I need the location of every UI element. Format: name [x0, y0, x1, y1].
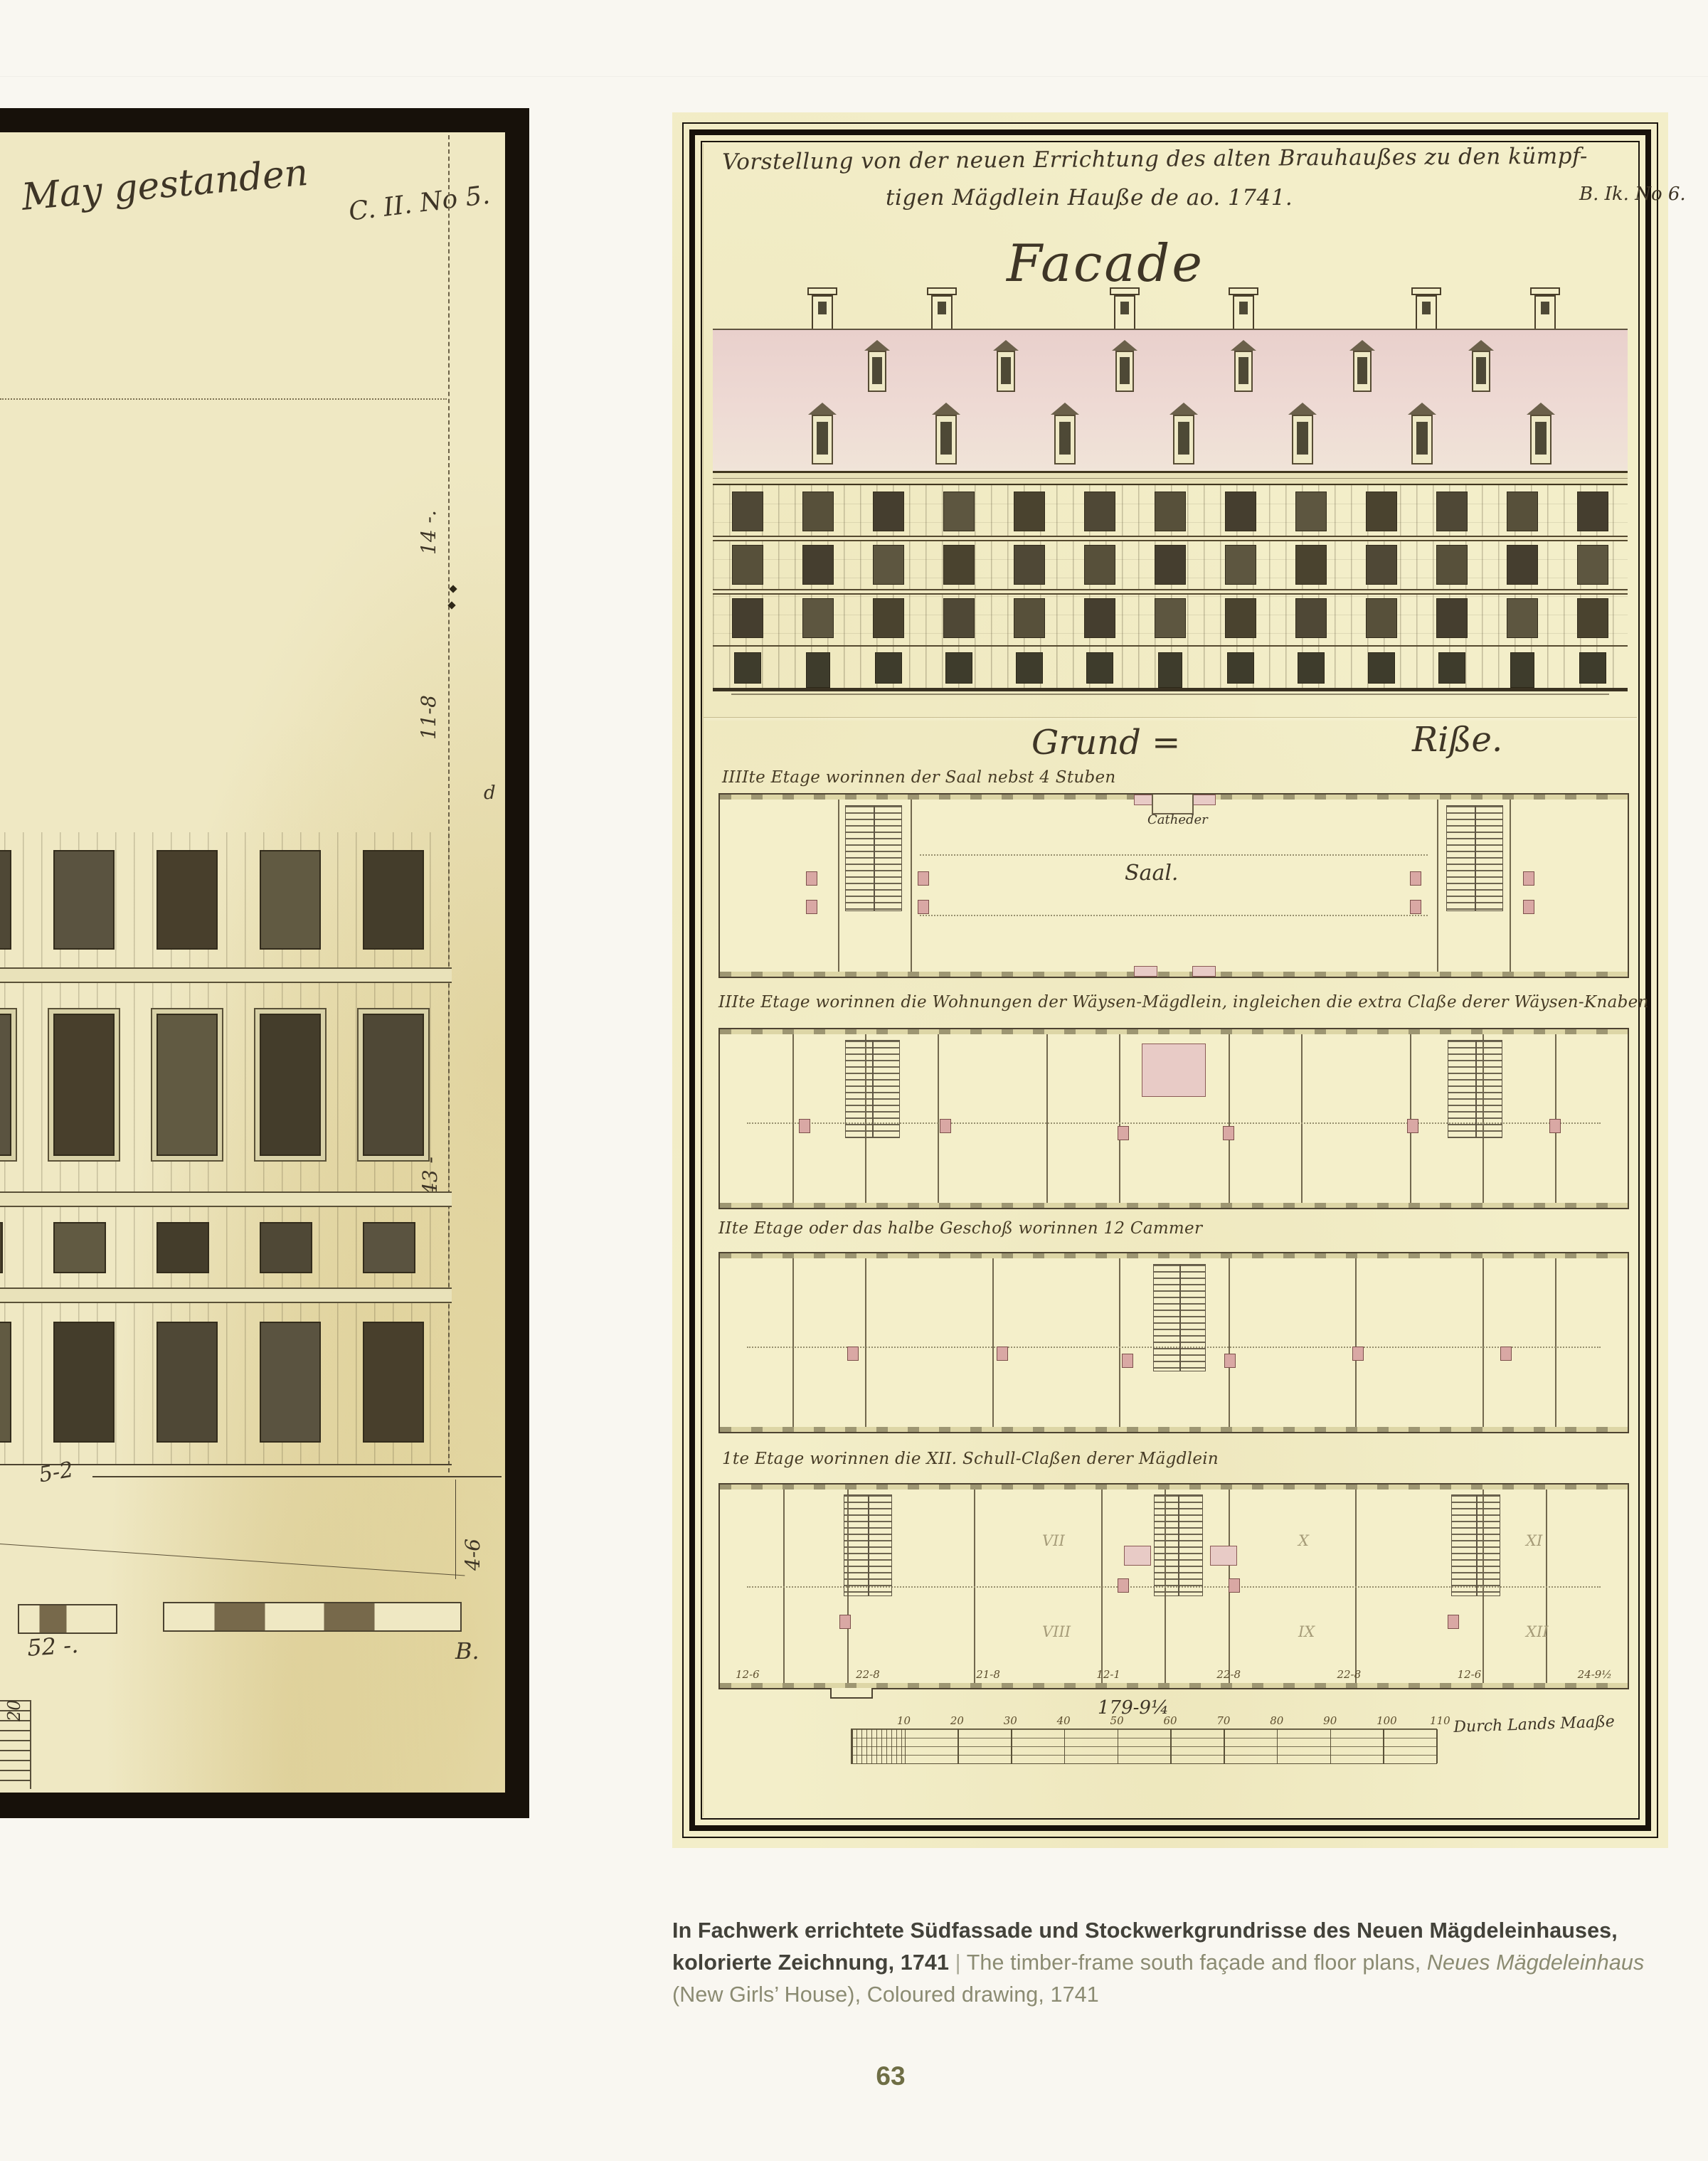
facade-window — [802, 598, 834, 638]
scan-artifact-line — [0, 76, 1708, 77]
scale-tick — [1224, 1729, 1225, 1763]
scale-tick — [1277, 1729, 1278, 1763]
page-number: 63 — [856, 2061, 925, 2091]
left-drawing: May gestanden C. II. No 5. 14 -. 11-8 43… — [0, 108, 529, 1818]
dormer-window — [810, 403, 835, 468]
stair-stringer — [1178, 1495, 1179, 1595]
room-numeral: XI — [1526, 1532, 1542, 1549]
room-numeral: VIII — [1042, 1623, 1071, 1640]
dormer-window — [1232, 340, 1255, 395]
stair-stringer — [868, 1495, 869, 1595]
chimney-cap — [1530, 287, 1560, 295]
dormer-pane — [1476, 357, 1486, 384]
stair-stringer — [872, 1041, 874, 1137]
plan-partition-wall — [1119, 1034, 1120, 1203]
stove — [1118, 1578, 1129, 1593]
facade-window — [1084, 492, 1115, 531]
plan-dimension: 12-6 — [1458, 1668, 1482, 1681]
timber-band — [0, 967, 452, 983]
facade-body — [713, 485, 1628, 645]
stove — [997, 1347, 1008, 1361]
facade-window — [1295, 492, 1327, 531]
facade-window — [1577, 598, 1608, 638]
right-drawing: Vorstellung von der neuen Errichtung des… — [672, 112, 1668, 1848]
chimney-mass — [1192, 966, 1216, 977]
plan-beam-line — [920, 854, 1428, 856]
facade-window — [260, 1222, 312, 1273]
chimney-cap — [927, 287, 957, 295]
ground-window — [734, 652, 761, 684]
plan-partition-wall — [838, 800, 839, 972]
stove — [1223, 1126, 1234, 1140]
figure-caption: In Fachwerk errichtete Südfassade und St… — [672, 1915, 1670, 2011]
dormer-pediment — [1169, 403, 1198, 415]
facade-window — [1366, 598, 1397, 638]
floor-plan-2 — [718, 1252, 1629, 1433]
facade-window — [0, 1322, 11, 1443]
dormer-window — [1528, 403, 1554, 468]
plan-dimension: 22-8 — [856, 1668, 880, 1681]
scale-tick-label: 10 — [897, 1714, 911, 1727]
facade-window — [260, 1322, 321, 1443]
facade-window — [363, 850, 424, 950]
plan-partition-wall — [1229, 1258, 1230, 1427]
facade-window — [1014, 598, 1045, 638]
facade-window — [260, 850, 321, 950]
facade-window — [53, 850, 115, 950]
plan-partition-wall — [1229, 1034, 1230, 1203]
stair-stringer — [1475, 1041, 1477, 1137]
scale-tick-label: 90 — [1323, 1714, 1337, 1727]
facade-window — [157, 1222, 209, 1273]
plan-dimension: 22-8 — [1216, 1668, 1241, 1681]
floor-band — [713, 589, 1628, 595]
stove — [918, 871, 929, 886]
facade-window — [157, 850, 218, 950]
entrance-stub — [830, 1688, 873, 1699]
plan-wall-bottom — [720, 1427, 1628, 1432]
stove — [1229, 1578, 1240, 1593]
timber-band — [0, 1287, 452, 1303]
staircase — [1451, 1494, 1500, 1596]
facade-window — [732, 598, 763, 638]
ground-window — [1227, 652, 1254, 684]
scale-tick-label: 70 — [1216, 1714, 1230, 1727]
chimney-vent — [1239, 302, 1248, 314]
dormer-window — [1171, 403, 1197, 468]
scale-tick-label: 40 — [1057, 1714, 1071, 1727]
dormer-pane — [1357, 357, 1367, 384]
chimney-vent — [1120, 302, 1129, 314]
plan-partition-wall — [792, 1034, 794, 1203]
room-label-catheder: Catheder — [1147, 812, 1208, 827]
dormer-pediment — [864, 340, 890, 351]
facade-window — [1014, 545, 1045, 585]
facade-window — [1436, 598, 1468, 638]
chimney-mass — [1124, 1546, 1151, 1566]
ground-window — [875, 652, 902, 684]
stair-stringer — [1179, 1265, 1181, 1371]
dormer-pediment — [1527, 403, 1555, 415]
plan-partition-wall — [1555, 1258, 1556, 1427]
dormer-pediment — [1288, 403, 1317, 415]
dormer-window — [1409, 403, 1435, 468]
roof-band — [713, 329, 1628, 472]
plan-partition-wall — [1046, 1034, 1048, 1203]
caption-english: The timber-frame south façade and floor … — [967, 1950, 1427, 1975]
facade-window — [53, 1222, 106, 1273]
ground-window — [945, 652, 972, 684]
facade-window — [802, 492, 834, 531]
facade-window — [1014, 492, 1045, 531]
plan-wall-top — [720, 1029, 1628, 1034]
chimney-mass — [1134, 966, 1157, 977]
stove — [1407, 1119, 1418, 1133]
plans-heading-right: Riße. — [1412, 720, 1502, 760]
staircase — [1154, 1494, 1203, 1596]
room-numeral: X — [1298, 1532, 1309, 1549]
drawing-title-line2: tigen Mägdlein Hauße de ao. 1741. — [886, 185, 1293, 211]
dormer-pediment — [1051, 403, 1079, 415]
scale-hatched-unit — [852, 1729, 905, 1763]
cornice — [713, 471, 1628, 485]
dormer-pediment — [1468, 340, 1494, 351]
sight-line — [0, 1544, 465, 1576]
dormer-pane — [872, 357, 882, 384]
facade-window — [157, 1322, 218, 1443]
facade-door — [806, 652, 830, 688]
stove — [940, 1119, 951, 1133]
dormer-window — [1470, 340, 1492, 395]
caption-english-title: Neues Mägdeleinhaus — [1427, 1950, 1644, 1975]
scale-tick — [958, 1729, 959, 1763]
ground-window — [1086, 652, 1113, 684]
scale-tick — [1011, 1729, 1012, 1763]
chimney-vent — [818, 302, 827, 314]
dormer-pane — [1178, 422, 1189, 455]
facade-window — [1084, 598, 1115, 638]
plan-dimension: 12-1 — [1096, 1668, 1120, 1681]
scale-bar-body — [851, 1729, 1437, 1764]
wall-section-bar — [163, 1602, 462, 1632]
stair-stringer — [1476, 1495, 1478, 1595]
dormer-pediment — [1112, 340, 1137, 351]
stove — [1122, 1354, 1133, 1368]
chimney-vent — [1541, 302, 1549, 314]
dimension-label: 14 -. — [417, 510, 440, 555]
scale-tick-label: 100 — [1377, 1714, 1397, 1727]
facade-window — [1507, 598, 1538, 638]
ground-window — [1368, 652, 1395, 684]
scale-tick — [905, 1729, 906, 1763]
plan-wall-top — [720, 1253, 1628, 1258]
facade-window — [363, 1222, 415, 1273]
chimney-mass — [1192, 795, 1216, 805]
stove — [918, 900, 929, 914]
facade-door — [1510, 652, 1534, 688]
dormer-pane — [1238, 357, 1248, 384]
scale-tick-label: 80 — [1270, 1714, 1283, 1727]
stove — [1523, 900, 1534, 914]
stove — [1410, 900, 1421, 914]
dimension-label: 4-6 — [461, 1539, 484, 1571]
dormer-window — [933, 403, 959, 468]
dormer-pane — [817, 422, 828, 455]
dormer-pediment — [1349, 340, 1375, 351]
facade-window — [1436, 545, 1468, 585]
plan-beam-line — [920, 915, 1428, 916]
facade-window — [802, 545, 834, 585]
facade-window — [873, 492, 904, 531]
drawing-reference-number: B. Ik. No 6. — [1579, 184, 1686, 205]
staircase — [844, 1494, 893, 1596]
stair-stringer — [874, 806, 875, 910]
left-archive-number: C. II. No 5. — [347, 181, 492, 227]
facade-window — [363, 1322, 424, 1443]
dormer-pediment — [1231, 340, 1256, 351]
room-numeral: IX — [1298, 1623, 1315, 1640]
facade-window — [0, 850, 11, 950]
plan-partition-wall — [865, 1258, 866, 1427]
plan-partition-wall — [911, 800, 912, 972]
facade-window — [1155, 545, 1186, 585]
book-page: May gestanden C. II. No 5. 14 -. 11-8 43… — [0, 0, 1708, 2161]
staircase — [1448, 1040, 1502, 1138]
plan-wall-top — [720, 1485, 1628, 1490]
ground-window — [1016, 652, 1043, 684]
chimney-cap — [1411, 287, 1441, 295]
chimney-cap — [807, 287, 837, 295]
plan-partition-wall — [1301, 1034, 1303, 1203]
chimney-vent — [1422, 302, 1431, 314]
dormer-pediment — [808, 403, 837, 415]
scale-tick-label: 60 — [1163, 1714, 1177, 1727]
paper-fold-seam — [703, 144, 704, 1817]
scale-tick-label: 20 — [950, 1714, 964, 1727]
plan-partition-wall — [1119, 1258, 1120, 1427]
dormer-pane — [940, 422, 952, 455]
dormer-pane — [1416, 422, 1428, 455]
ground-window — [1298, 652, 1325, 684]
dimension-label: 52 -. — [26, 1631, 79, 1662]
plan-partition-wall — [792, 1258, 794, 1427]
dormer-pane — [1059, 422, 1071, 455]
catheder-box — [1152, 795, 1194, 814]
facade-door — [1158, 652, 1182, 688]
dormer-pane — [1297, 422, 1308, 455]
stove — [806, 900, 817, 914]
facade-window — [53, 1322, 115, 1443]
stove — [806, 871, 817, 886]
staircase — [1446, 805, 1503, 910]
facade-window — [1507, 545, 1538, 585]
paper-fold-seam — [704, 717, 1637, 718]
facade-window — [260, 1014, 321, 1156]
floor-label-1: 1te Etage worinnen die XII. Schull-Claße… — [722, 1450, 1219, 1468]
dimension-label: 5-2 — [37, 1458, 75, 1488]
dormer-pediment — [1408, 403, 1436, 415]
facade-window — [873, 545, 904, 585]
point-label-d: d — [484, 782, 496, 804]
stove — [847, 1347, 859, 1361]
caption-english-tail: (New Girls’ House), Coloured drawing, 17… — [672, 1982, 1099, 2007]
survey-mark — [449, 585, 457, 593]
floor-label-2: IIte Etage oder das halbe Geschoß worinn… — [718, 1219, 1202, 1238]
stove — [1500, 1347, 1512, 1361]
facade-window — [732, 545, 763, 585]
facade-window — [1507, 492, 1538, 531]
dormer-window — [1351, 340, 1374, 395]
facade-window — [943, 492, 975, 531]
scale-tick — [1330, 1729, 1332, 1763]
plan-partition-wall — [1437, 800, 1438, 972]
facade-elevation — [713, 285, 1628, 697]
point-label-b: B. — [455, 1637, 479, 1664]
facade-window — [0, 1222, 3, 1273]
room-numeral: VII — [1042, 1532, 1065, 1549]
staircase — [845, 805, 902, 910]
facade-window — [157, 1014, 218, 1156]
facade-window — [943, 598, 975, 638]
plans-heading-left: Grund = — [1031, 723, 1180, 763]
stove — [1549, 1119, 1561, 1133]
facade-window — [363, 1014, 424, 1156]
plan-dimension: 24-9½ — [1578, 1668, 1612, 1681]
facade-window — [1225, 545, 1256, 585]
left-drawing-border-top — [0, 108, 529, 132]
dimension-row: 12-622-821-812-122-822-812-624-9½ — [736, 1668, 1612, 1681]
scale-label: Durch Lands Maaße — [1453, 1713, 1615, 1736]
base-line — [713, 688, 1628, 691]
dormer-pane — [1535, 422, 1547, 455]
dimension-label: 11-8 — [417, 695, 440, 740]
plan-wall-bottom — [720, 1203, 1628, 1208]
scale-tick — [1170, 1729, 1172, 1763]
plan-dimension: 12-6 — [736, 1668, 760, 1681]
plan-partition-wall — [1510, 800, 1511, 972]
facade-window — [873, 598, 904, 638]
scale-number: 20 — [4, 1699, 24, 1721]
facade-window — [732, 492, 763, 531]
floor-plan-3 — [718, 1028, 1629, 1209]
plan-dimension: 21-8 — [976, 1668, 1000, 1681]
scale-bar: 102030405060708090100110 — [851, 1714, 1437, 1771]
stove — [1448, 1615, 1459, 1629]
caption-separator: | — [949, 1950, 967, 1975]
room-numeral: XII — [1526, 1623, 1549, 1640]
dormer-pane — [1120, 357, 1130, 384]
dormer-window — [1052, 403, 1078, 468]
facade-window — [1225, 492, 1256, 531]
floor-plan-1: 12-622-821-812-122-822-812-624-9½ — [718, 1483, 1629, 1689]
dotted-guide-line — [0, 398, 447, 400]
plan-partition-wall — [992, 1258, 994, 1427]
facade-window — [1295, 598, 1327, 638]
stair-stringer — [1475, 806, 1476, 910]
staircase — [1153, 1264, 1206, 1371]
dimension-bracket — [455, 1480, 456, 1579]
ground-floor — [713, 645, 1628, 689]
facade-window — [1084, 545, 1115, 585]
facade-window — [1577, 492, 1608, 531]
stove — [1224, 1354, 1236, 1368]
dormer-window — [866, 340, 889, 395]
dormer-window — [1113, 340, 1136, 395]
plan-wall-bottom — [720, 1683, 1628, 1688]
plan-partition-wall — [1482, 1258, 1484, 1427]
left-inscription: May gestanden — [20, 152, 310, 219]
dormer-window — [1290, 403, 1315, 468]
stove — [1410, 871, 1421, 886]
floor-label-4: IIIIte Etage worinnen der Saal nebst 4 S… — [722, 768, 1116, 787]
left-facade-fragment — [0, 832, 452, 1465]
scale-tick — [1118, 1729, 1119, 1763]
floor-label-3: IIIte Etage worinnen die Wohnungen der W… — [718, 993, 1649, 1012]
floor-band — [713, 536, 1628, 541]
scale-tick — [1383, 1729, 1384, 1763]
dormer-pane — [1001, 357, 1011, 384]
facade-window — [1155, 598, 1186, 638]
plan-wall-bottom — [720, 972, 1628, 977]
ground-window — [1579, 652, 1606, 684]
facade-window — [1436, 492, 1468, 531]
stove — [1118, 1126, 1129, 1140]
chimney-cap — [1229, 287, 1258, 295]
left-drawing-border-right — [505, 108, 529, 1818]
left-drawing-border-bottom — [0, 1793, 529, 1818]
dormer-pediment — [993, 340, 1019, 351]
facade-window — [0, 1014, 11, 1156]
facade-window — [53, 1014, 115, 1156]
dimension-line — [92, 1476, 502, 1477]
stove — [1352, 1347, 1364, 1361]
chimney-mass — [1142, 1044, 1205, 1097]
scale-tick — [1436, 1729, 1438, 1763]
facade-window — [943, 545, 975, 585]
stove — [799, 1119, 810, 1133]
facade-window — [1366, 492, 1397, 531]
scale-tick-label: 30 — [1004, 1714, 1017, 1727]
stove — [839, 1615, 851, 1629]
scale-tick — [1064, 1729, 1066, 1763]
scale-tick-label: 110 — [1430, 1714, 1450, 1727]
facade-window — [1155, 492, 1186, 531]
timber-band — [0, 1191, 452, 1207]
room-label-saal: Saal. — [1125, 861, 1178, 886]
plan-partition-wall — [1355, 1258, 1357, 1427]
dormer-pediment — [932, 403, 960, 415]
plan-dimension: 22-8 — [1337, 1668, 1361, 1681]
facade-window — [1366, 545, 1397, 585]
cornice-line — [713, 478, 1628, 479]
staircase — [845, 1040, 900, 1138]
dormer-window — [994, 340, 1017, 395]
chimney-cap — [1110, 287, 1140, 295]
chimney-vent — [938, 302, 946, 314]
drawing-title-line1: Vorstellung von der neuen Errichtung des… — [722, 144, 1588, 175]
ground-window — [1438, 652, 1465, 684]
facade-window — [1295, 545, 1327, 585]
facade-window — [1577, 545, 1608, 585]
scale-tick-label: 50 — [1110, 1714, 1124, 1727]
pavement-line — [731, 694, 1610, 695]
stove — [1523, 871, 1534, 886]
wall-section-bar — [18, 1604, 117, 1634]
chimney-mass — [1210, 1546, 1237, 1566]
facade-window — [1225, 598, 1256, 638]
